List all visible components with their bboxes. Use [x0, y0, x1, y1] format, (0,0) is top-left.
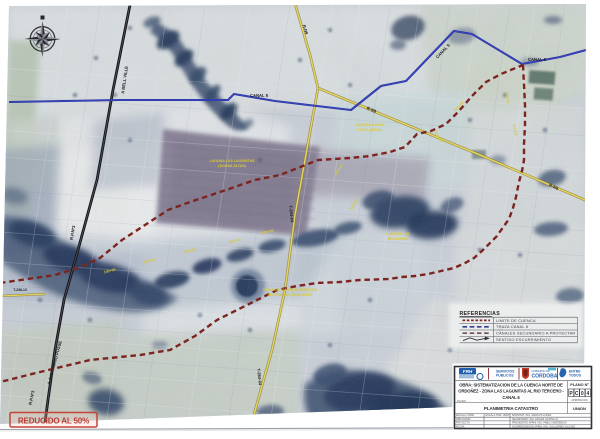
svg-text:ORDOÑEZ - ZONA LAS LAGUNITAS A: ORDOÑEZ - ZONA LAS LAGUNITAS AL RIO TERC… — [458, 389, 564, 394]
svg-text:APROBACION: APROBACION — [572, 399, 588, 402]
svg-text:ESCALA HOR. VERT.: ESCALA HOR. VERT. — [486, 414, 511, 417]
svg-text:ESCALA 1:5000: ESCALA 1:5000 — [456, 414, 475, 417]
svg-text:LUCIA (SECA): LUCIA (SECA) — [358, 128, 383, 132]
svg-text:SENTIDO ESCURRIMIENTO: SENTIDO ESCURRIMIENTO — [496, 337, 551, 342]
svg-text:GOBIERNO DE: GOBIERNO DE — [532, 369, 551, 373]
svg-text:OBRA: SISTEMATIZACION DE LA CU: OBRA: SISTEMATIZACION DE LA CUENCA NORTE… — [459, 382, 563, 387]
svg-text:PROYECTO: PROYECTO — [456, 422, 470, 425]
svg-text:PLANO: PLANO — [457, 399, 466, 403]
svg-text:MOJARRAS: MOJARRAS — [388, 237, 409, 241]
svg-text:0: 0 — [581, 391, 584, 397]
svg-text:UNION DE CANALES RURALES: UNION DE CANALES RURALES — [263, 288, 318, 292]
svg-text:(AGUAS ALTAS): (AGUAS ALTAS) — [218, 164, 246, 168]
svg-text:CANALES SECUNDARIO A PROYECTAR: CANALES SECUNDARIO A PROYECTAR — [496, 331, 575, 336]
svg-text:REDUCIDO AL 50%: REDUCIDO AL 50% — [18, 417, 89, 426]
svg-text:PLANIMETRIA CATASTRO: PLANIMETRIA CATASTRO — [484, 406, 539, 411]
svg-text:LIMITE DE CUENCA: LIMITE DE CUENCA — [496, 318, 536, 323]
svg-text:C: C — [575, 391, 579, 397]
svg-text:TODOS: TODOS — [569, 374, 582, 378]
svg-text:MINISTRO: ING. MARCOS LOPEZ: MINISTRO: ING. MARCOS LOPEZ — [512, 414, 552, 417]
svg-text:PUBLICOS: PUBLICOS — [496, 374, 514, 378]
svg-text:TRAZA CANAL 6: TRAZA CANAL 6 — [496, 324, 528, 329]
svg-text:FECHA: FECHA — [456, 425, 465, 428]
svg-text:PLANO Nº: PLANO Nº — [570, 383, 589, 387]
svg-text:FRH: FRH — [463, 369, 473, 374]
svg-text:SECTOR LAS LAGUNITAS: SECTOR LAS LAGUNITAS — [268, 293, 313, 297]
svg-text:LAGUNA SANTA: LAGUNA SANTA — [356, 123, 385, 127]
svg-text:CANAL 5: CANAL 5 — [250, 93, 269, 98]
svg-text:LAGUNA LAS LAGUNITAS: LAGUNA LAS LAGUNITAS — [209, 159, 255, 163]
svg-text:VICEPRESIDENTE APRHI: ING. GUI: VICEPRESIDENTE APRHI: ING. GUILLERMO VIL… — [512, 425, 576, 428]
svg-text:UNION: UNION — [573, 406, 586, 411]
svg-text:T-236-13: T-236-13 — [13, 288, 27, 292]
svg-text:DIBUJARON: DIBUJARON — [456, 418, 471, 421]
svg-text:CORDOBA: CORDOBA — [532, 374, 558, 380]
svg-text:4: 4 — [587, 391, 590, 397]
svg-text:SECRETARIO: ING. EDGAR CASTELL: SECRETARIO: ING. EDGAR CASTELLO — [512, 418, 558, 421]
svg-text:CANAL 6: CANAL 6 — [502, 395, 520, 400]
svg-text:LAGUNA LAS: LAGUNA LAS — [386, 232, 410, 236]
svg-text:PRESIDENTE APRHI: ING. PABLO W: PRESIDENTE APRHI: ING. PABLO WIERZBICKI — [512, 422, 567, 425]
svg-text:CANAL 6: CANAL 6 — [528, 57, 547, 62]
